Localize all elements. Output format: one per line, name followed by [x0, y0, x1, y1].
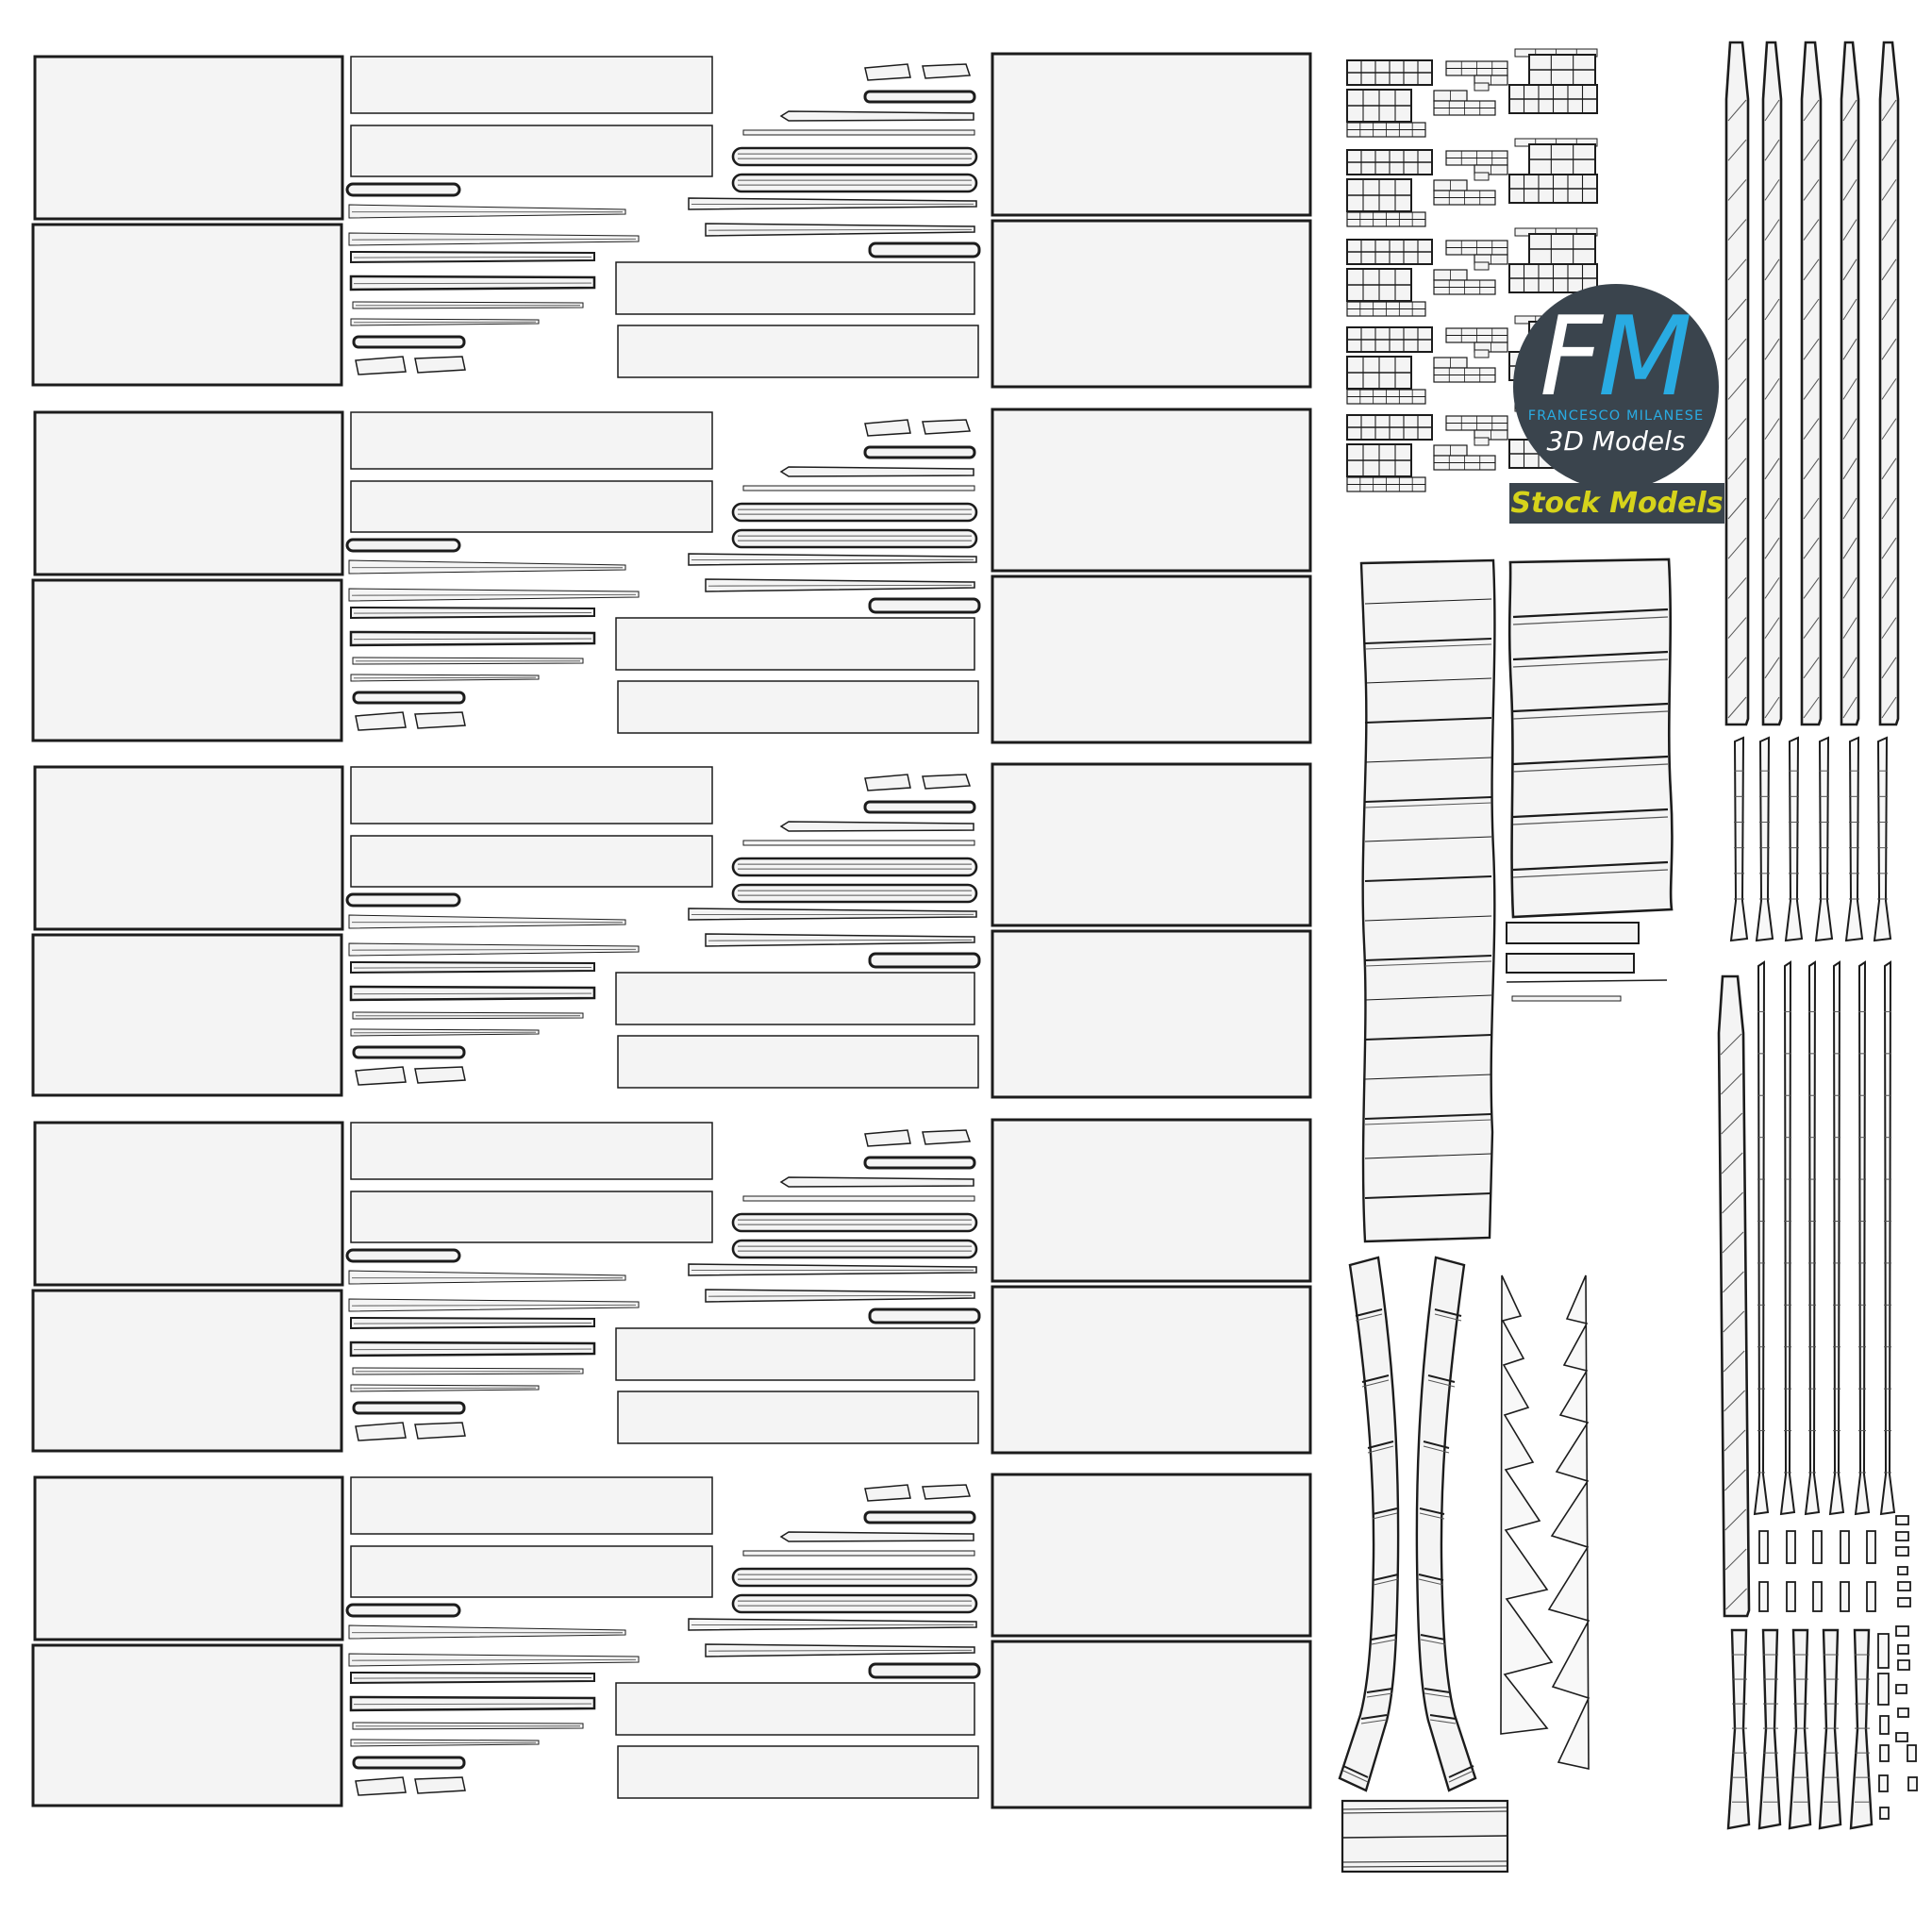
uv-panel-group-1 [33, 54, 1310, 387]
stock-models-badge: Stock Models [1509, 483, 1724, 524]
uv-right-segmented-column [1509, 559, 1672, 917]
uv-curved-strip-left [1340, 1257, 1398, 1790]
uv-texture-sheet: FM FRANCESCO MILANESE 3D Models Stock Mo… [0, 0, 1932, 1932]
uv-tall-strips [1719, 42, 1898, 1616]
uv-panel-group-2 [33, 409, 1310, 742]
uv-bottom-strips [1728, 1630, 1872, 1828]
brand-monogram-m: M [1598, 293, 1692, 421]
uv-curved-strip-right [1417, 1257, 1475, 1790]
uv-panel-group-4 [33, 1120, 1310, 1453]
uv-below-right-column [1507, 923, 1667, 1001]
brand-subtitle: FRANCESCO MILANESE [1528, 408, 1705, 424]
brand-monogram-f: F [1540, 293, 1603, 421]
brand-tagline: 3D Models [1547, 425, 1686, 457]
uv-bottom-banded-rect [1342, 1801, 1507, 1872]
brand-monogram: FM [1540, 315, 1692, 400]
uv-zigzag-strips [1501, 1275, 1589, 1769]
uv-left-segmented-column [1361, 560, 1494, 1241]
stock-models-label: Stock Models [1510, 487, 1723, 520]
brand-logo: FM FRANCESCO MILANESE 3D Models [1513, 284, 1719, 490]
uv-panel-group-5 [33, 1474, 1310, 1807]
uv-thin-strips [1731, 738, 1894, 1514]
uv-panel-group-3 [33, 764, 1310, 1097]
